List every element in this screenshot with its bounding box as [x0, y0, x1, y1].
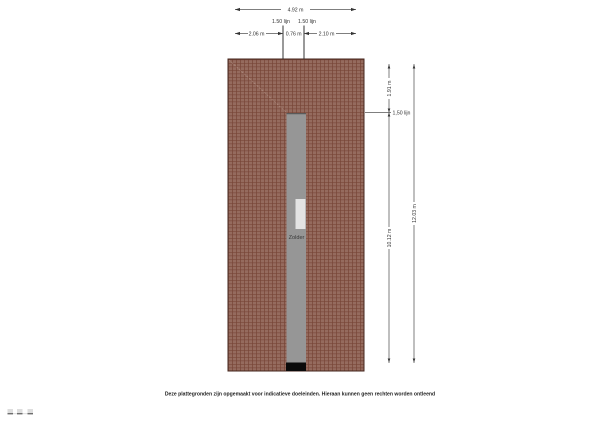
svg-text:1.91 m: 1.91 m: [387, 81, 393, 97]
svg-text:0.76 m: 0.76 m: [286, 32, 302, 38]
svg-text:1.50 lijn: 1.50 lijn: [298, 19, 316, 25]
svg-text:Zolder: Zolder: [289, 235, 305, 241]
svg-text:4.92 m: 4.92 m: [288, 8, 304, 14]
svg-text:2.06 m: 2.06 m: [249, 32, 265, 38]
svg-text:1.50 lijn: 1.50 lijn: [272, 19, 290, 25]
svg-text:2.10 m: 2.10 m: [319, 32, 335, 38]
svg-text:Deze plattegronden zijn opgema: Deze plattegronden zijn opgemaakt voor i…: [165, 392, 435, 398]
svg-text:10.12 m: 10.12 m: [387, 229, 393, 248]
svg-text:1,50 lijn: 1,50 lijn: [393, 111, 411, 117]
svg-text:12.03 m: 12.03 m: [412, 204, 418, 223]
